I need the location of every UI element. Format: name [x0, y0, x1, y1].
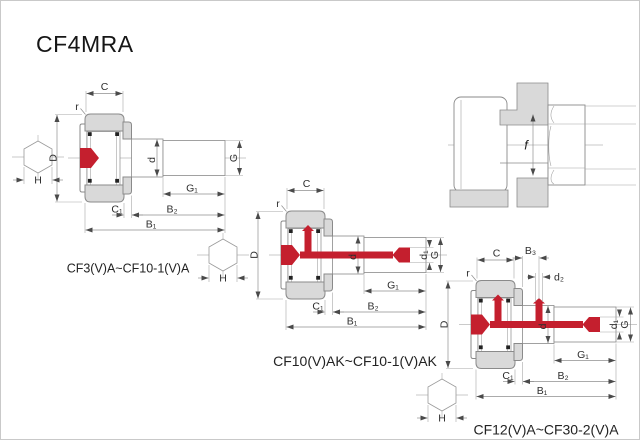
dim-label-d: d [347, 254, 359, 260]
track-rail [450, 190, 508, 207]
dim-label-G1: G₁ [577, 349, 589, 361]
page-title: CF4MRA [36, 31, 134, 57]
dim-label-C1: C₁ [502, 370, 514, 382]
dim-label-G: G [619, 320, 631, 328]
catalog-drawing-page: CF4MRA C r D d G G₁ C₁ B₂ B₁ H CF3(V)A~C… [0, 0, 640, 440]
figure-caption: CF3(V)A~CF10-1(V)A [67, 262, 190, 276]
dim-label-G1: G₁ [387, 280, 399, 292]
hex-nut [548, 105, 585, 185]
roller-outline [454, 97, 507, 192]
dim-label-C1: C₁ [312, 301, 324, 313]
dim-label-d: d [146, 157, 158, 163]
dim-label-B1: B₁ [537, 385, 548, 397]
thread-lines [585, 106, 636, 185]
figure-caption: CF12(V)A~CF30-2(V)A [473, 422, 619, 438]
dim-label-G1: G₁ [186, 183, 198, 195]
dim-label-B2: B₂ [557, 370, 568, 382]
mounting-detail-view: f [448, 83, 636, 207]
dim-label-C: C [493, 248, 501, 260]
dim-label-r: r [75, 101, 79, 113]
technical-drawing-canvas: CF4MRA C r D d G G₁ C₁ B₂ B₁ H CF3(V)A~C… [1, 1, 639, 439]
dim-label-G: G [429, 251, 441, 259]
dim-label-D: D [48, 154, 60, 162]
dim-label-H: H [219, 273, 227, 285]
dim-label-r: r [466, 268, 470, 280]
dim-label-H: H [34, 175, 42, 187]
dim-label-d2: d₂ [554, 272, 564, 284]
dim-label-H: H [438, 413, 446, 425]
dim-label-G: G [228, 154, 240, 162]
dim-label-C1: C₁ [111, 204, 123, 216]
figure-cf12a: C B₃ d₂ r D d d₁ G G₁ C₁ B₂ B₁ H CF12(V)… [416, 245, 637, 438]
figure-cf10ak: C r D d d₁ G G₁ C₁ B₂ B₁ H CF10(V)AK~CF1… [197, 178, 447, 369]
dim-label-B2: B₂ [367, 301, 378, 313]
dim-label-d: d [537, 323, 549, 329]
dim-label-D: D [249, 251, 261, 259]
dim-label-B3: B₃ [525, 245, 536, 257]
dim-label-B2: B₂ [166, 204, 177, 216]
dim-label-C: C [303, 178, 311, 190]
figure-caption: CF10(V)AK~CF10-1(V)AK [273, 353, 437, 369]
dim-label-D: D [439, 320, 451, 328]
dim-label-B1: B₁ [347, 316, 358, 328]
dim-label-C: C [101, 81, 109, 93]
dim-label-r: r [276, 198, 280, 210]
dim-label-B1: B₁ [146, 219, 157, 231]
